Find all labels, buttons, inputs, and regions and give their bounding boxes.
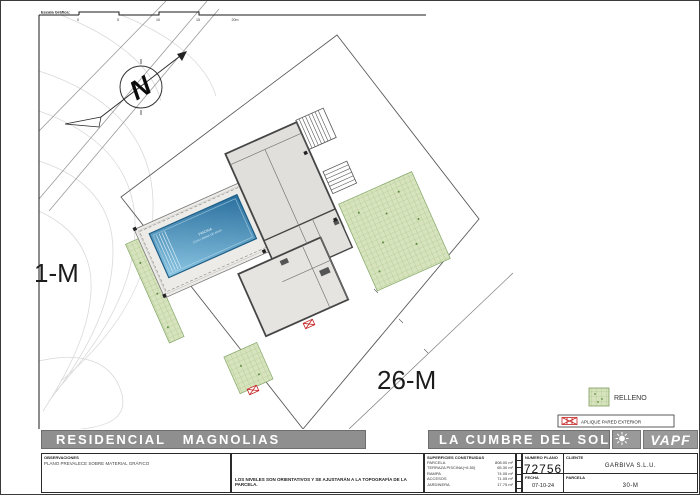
parcel-label-left: 1-M	[34, 258, 79, 288]
building-group: PISCINA COTA LÁMINA DE AGUA	[108, 86, 466, 412]
location-title-band: LA CUMBRE DEL SOL	[428, 430, 610, 449]
scale-tick: 10	[156, 18, 160, 22]
observaciones-text: PLANO PREVALECE SOBRE MATERIAL GRÁFICO	[42, 460, 230, 466]
scale-tick: 15	[196, 18, 200, 22]
numero-plano-label: NUMERO PLANO	[523, 454, 563, 460]
north-arrow: N	[65, 51, 187, 127]
parcel-label-bottom: 26-M	[377, 365, 436, 395]
project-title: RESIDENCIAL MAGNOLIAS	[56, 432, 280, 447]
relleno-swatch	[589, 388, 609, 406]
relleno-label: RELLENO	[614, 395, 647, 402]
brand-name: VAPF	[650, 432, 690, 448]
parcela-box: PARCELA 30-M	[563, 473, 698, 493]
superficie-value: 17.75 m²	[497, 482, 513, 487]
superficie-name: JARDINERA	[427, 482, 450, 487]
superficies-row: JARDINERA 17.75 m²	[425, 482, 515, 487]
project-title-band: RESIDENCIAL MAGNOLIAS	[41, 430, 366, 449]
scale-tick: 20m	[232, 18, 239, 22]
superficies-box: SUPERFICIES CONSTRUIDAS PARCELA 808.00 m…	[424, 453, 516, 493]
aplique-label: APLIQUE PARED EXTERIOR	[581, 420, 642, 425]
stairs-right	[323, 161, 357, 194]
brand-logo-box: VAPF	[643, 430, 698, 449]
aplique-legend-mark	[562, 418, 577, 425]
cliente-label: CLIENTE	[564, 454, 697, 460]
parcela-label: PARCELA	[564, 474, 697, 480]
road-lines	[39, 1, 219, 211]
sun-icon	[613, 431, 631, 446]
notes-box: LOS NIVELES SON ORIENTATIVOS Y SE AJUSTA…	[231, 453, 424, 493]
graphic-scale: Escala Gráfica: 0 5 10 15 20m	[41, 10, 239, 23]
parcela-value: 30-M	[564, 483, 697, 489]
numero-plano-box: NUMERO PLANO 72756	[522, 453, 564, 474]
brand-sun-box	[612, 430, 641, 449]
fecha-box: FECHA 07-10-24	[522, 473, 564, 493]
fecha-label: FECHA	[523, 474, 563, 480]
levels-note: LOS NIVELES SON ORIENTATIVOS Y SE AJUSTA…	[235, 477, 423, 487]
cliente-value: GARBIVA S.L.U.	[564, 463, 697, 469]
legend: RELLENO APLIQUE PARED EXTERIOR	[558, 388, 674, 427]
observaciones-box: OBSERVACIONES PLANO PREVALECE SOBRE MATE…	[41, 453, 231, 493]
cliente-box: CLIENTE GARBIVA S.L.U.	[563, 453, 698, 474]
scale-tick: 0	[77, 18, 79, 22]
fecha-value: 07-10-24	[523, 483, 563, 489]
drawing-sheet: PISCINA COTA LÁMINA DE AGUA	[0, 0, 700, 495]
site-plan-canvas: PISCINA COTA LÁMINA DE AGUA	[1, 1, 700, 429]
location-title: LA CUMBRE DEL SOL	[439, 432, 610, 447]
scale-tick: 5	[117, 18, 119, 22]
scale-label: Escala Gráfica:	[41, 10, 70, 15]
